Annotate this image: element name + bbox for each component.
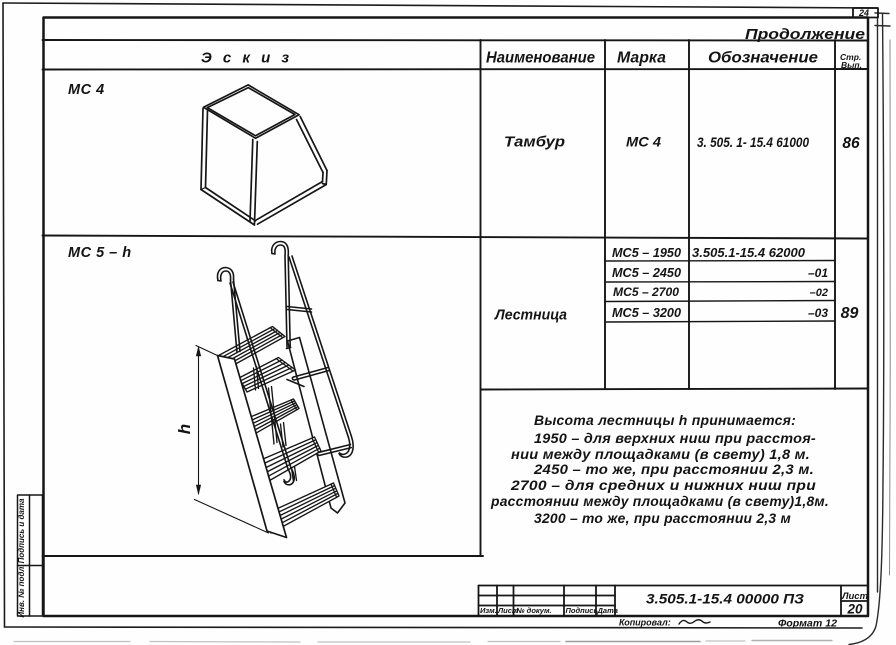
svg-text:Марка: Марка xyxy=(617,50,666,67)
svg-text:Обозначение: Обозначение xyxy=(708,50,818,67)
svg-text:3200 – то же, при расстоянии 2: 3200 – то же, при расстоянии 2,3 м xyxy=(534,511,791,527)
svg-text:Лестница: Лестница xyxy=(494,307,567,324)
svg-text:89: 89 xyxy=(841,305,859,322)
svg-text:МС5 – 3200: МС5 – 3200 xyxy=(612,305,681,320)
svg-text:Наименование: Наименование xyxy=(486,50,595,67)
svg-text:МС5 – 2450: МС5 – 2450 xyxy=(612,265,681,280)
svg-text:Подпись и дата: Подпись и дата xyxy=(17,498,26,563)
svg-text:Копировал:: Копировал: xyxy=(619,618,671,628)
svg-text:Изм.: Изм. xyxy=(480,606,497,615)
svg-text:Лист: Лист xyxy=(841,591,869,602)
svg-text:86: 86 xyxy=(842,135,860,152)
svg-text:–02: –02 xyxy=(810,287,828,299)
svg-text:Тамбур: Тамбур xyxy=(504,134,565,151)
svg-text:МС 5 – h: МС 5 – h xyxy=(68,245,132,261)
svg-text:h: h xyxy=(175,424,194,434)
svg-text:№ докум.: № докум. xyxy=(516,606,552,615)
svg-text:МС 4: МС 4 xyxy=(68,82,105,98)
svg-text:1950 – для верхних ниш при рас: 1950 – для верхних ниш при расстоя- xyxy=(534,431,816,447)
svg-text:Дата: Дата xyxy=(597,606,618,615)
svg-text:МС 4: МС 4 xyxy=(626,134,661,150)
svg-text:расстоянии между площадками (в: расстоянии между площадками (в свету)1,8… xyxy=(490,494,829,510)
svg-text:МС5 – 1950: МС5 – 1950 xyxy=(612,245,681,260)
svg-text:3.505.1-15.4 62000: 3.505.1-15.4 62000 xyxy=(692,245,806,260)
svg-text:2700 – для средних и нижних ни: 2700 – для средних и нижних ниш при xyxy=(510,478,816,494)
svg-text:3. 505. 1- 15.4 61000: 3. 505. 1- 15.4 61000 xyxy=(697,135,809,150)
svg-text:Инв. № подл.: Инв. № подл. xyxy=(17,564,26,617)
svg-text:–01: –01 xyxy=(808,266,828,280)
svg-text:–03: –03 xyxy=(808,306,828,320)
svg-text:3.505.1-15.4 00000 ПЗ: 3.505.1-15.4 00000 ПЗ xyxy=(646,591,804,607)
svg-text:Формат 12: Формат 12 xyxy=(778,618,837,630)
svg-text:Подпись: Подпись xyxy=(566,606,599,615)
svg-text:нии между площадками (в свету): нии между площадками (в свету) 1,8 м. xyxy=(511,447,810,463)
svg-text:2450 – то же, при расстоянии 2: 2450 – то же, при расстоянии 2,3 м. xyxy=(533,462,814,478)
svg-text:МС5 – 2700: МС5 – 2700 xyxy=(613,287,680,299)
svg-text:Вып.: Вып. xyxy=(841,60,862,70)
svg-text:Высота лестницы h принимается:: Высота лестницы h принимается: xyxy=(534,413,796,429)
svg-text:20: 20 xyxy=(846,602,863,617)
